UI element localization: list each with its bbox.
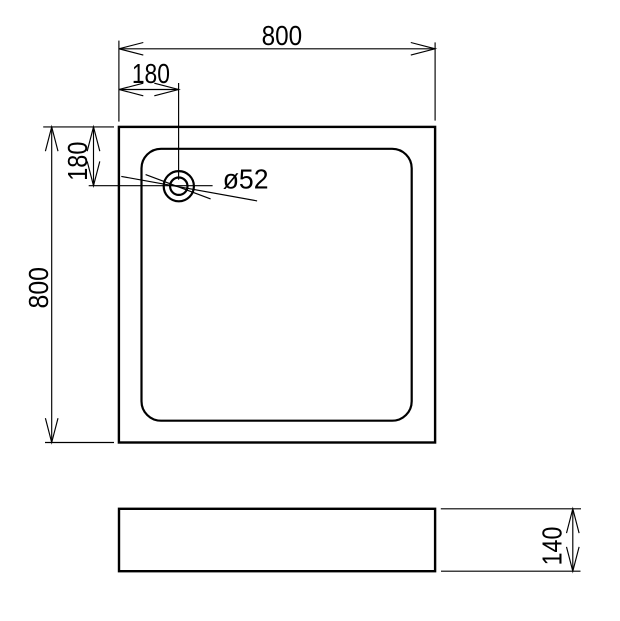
svg-text:180: 180 bbox=[63, 142, 93, 181]
svg-text:140: 140 bbox=[538, 527, 568, 566]
svg-text:180: 180 bbox=[132, 59, 170, 89]
svg-text:800: 800 bbox=[23, 267, 54, 308]
svg-text:ø52: ø52 bbox=[223, 164, 269, 194]
svg-text:800: 800 bbox=[262, 22, 303, 52]
